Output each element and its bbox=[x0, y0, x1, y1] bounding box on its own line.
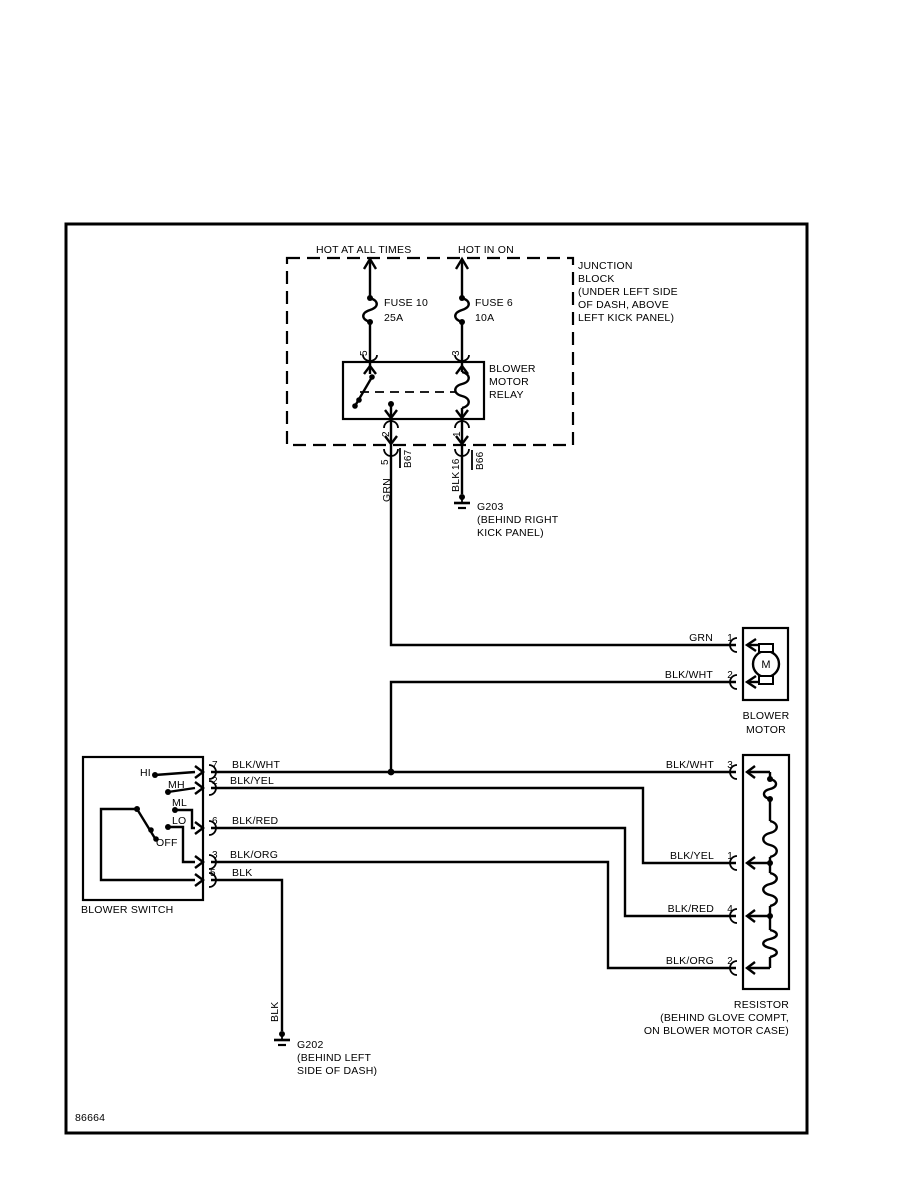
b67-pin: 5 bbox=[380, 459, 391, 465]
blower-switch-label: BLOWER SWITCH bbox=[81, 904, 173, 916]
junction-block-label: JUNCTION bbox=[578, 260, 633, 272]
b66-pin: 16 bbox=[451, 458, 462, 470]
ground-g203: G203 (BEHIND RIGHT KICK PANEL) bbox=[454, 494, 559, 539]
resistor-pin: 4 bbox=[727, 904, 733, 915]
resistor-wire-label: BLK/WHT bbox=[666, 759, 714, 771]
position-hi: HI bbox=[140, 767, 151, 779]
wire-blkred-row bbox=[211, 828, 736, 916]
resistor-block: BLK/WHT 3 BLK/YEL 1 BLK/RED 4 BLK/ORG 2 … bbox=[644, 755, 789, 1037]
position-lo: LO bbox=[172, 815, 186, 827]
junction-block-label: LEFT KICK PANEL) bbox=[578, 312, 674, 324]
resistor-coil-symbol bbox=[763, 930, 777, 957]
resistor-node-dot bbox=[767, 913, 773, 919]
g202-location: SIDE OF DASH) bbox=[297, 1065, 377, 1077]
switch-internal-wire bbox=[155, 772, 195, 775]
g202-location: (BEHIND LEFT bbox=[297, 1052, 372, 1064]
relay-label: RELAY bbox=[489, 389, 524, 401]
switch-pin: 6 bbox=[212, 816, 218, 827]
g203-location: KICK PANEL) bbox=[477, 527, 544, 539]
motor-label: BLOWER bbox=[743, 710, 790, 722]
motor-label: MOTOR bbox=[746, 724, 786, 736]
g203-name: G203 bbox=[477, 501, 504, 513]
junction-block-label: BLOCK bbox=[578, 273, 615, 285]
motor-wire1-label: GRN bbox=[689, 632, 713, 644]
figure-number: 86664 bbox=[75, 1112, 105, 1124]
fuse10-circuit: FUSE 10 25A 5 bbox=[359, 259, 428, 374]
right-arrow-icon bbox=[195, 856, 203, 868]
resistor-node-dot bbox=[767, 860, 773, 866]
resistor-coil-symbol bbox=[763, 873, 777, 906]
switch-wire-label: BLK/WHT bbox=[232, 759, 280, 771]
relay-label: BLOWER bbox=[489, 363, 536, 375]
switch-wire-label: BLK/ORG bbox=[230, 849, 278, 861]
relay-arm-dot bbox=[356, 397, 362, 403]
relay-arm-dot bbox=[352, 403, 358, 409]
resistor-wire-label: BLK/YEL bbox=[670, 850, 714, 862]
switch-pin: 3 bbox=[212, 850, 218, 861]
wire-blk-vertical-label: BLK bbox=[269, 1002, 281, 1022]
switch-pin: 5 bbox=[210, 868, 216, 879]
switch-wire-label: BLK/RED bbox=[232, 815, 279, 827]
resistor-label: (BEHIND GLOVE COMPT, bbox=[660, 1012, 789, 1024]
b66-name: B66 bbox=[475, 451, 486, 470]
resistor-wire-label: BLK/ORG bbox=[666, 955, 714, 967]
motor-symbol: M bbox=[761, 659, 770, 671]
resistor-label: RESISTOR bbox=[734, 999, 789, 1011]
switch-pin: 2 bbox=[212, 776, 218, 787]
switch-pin: 7 bbox=[212, 760, 218, 771]
right-arrow-icon bbox=[195, 782, 203, 794]
resistor-pin: 2 bbox=[727, 956, 733, 967]
motor-wire2-label: BLK/WHT bbox=[665, 669, 713, 681]
motor-pin2: 2 bbox=[727, 670, 733, 681]
fuse6-name: FUSE 6 bbox=[475, 297, 513, 309]
fuse10-rating: 25A bbox=[384, 312, 403, 324]
connector-b66: 16 B66 bbox=[451, 449, 486, 470]
fuse-symbol bbox=[363, 298, 377, 322]
motor-pin1: 1 bbox=[727, 633, 733, 644]
b67-name: B67 bbox=[403, 449, 414, 468]
resistor-pin: 1 bbox=[727, 851, 733, 862]
fuse-symbol bbox=[455, 298, 469, 322]
relay-pin-top-left: 5 bbox=[359, 350, 370, 356]
relay-pin-top-right: 3 bbox=[451, 350, 462, 356]
wire-blkyel-row bbox=[211, 788, 736, 863]
blower-switch: BLOWER SWITCH HI MH ML LO OFF 7 BLK/WHT … bbox=[81, 757, 280, 916]
resistor-coil-symbol bbox=[763, 821, 777, 857]
fuse6-rating: 10A bbox=[475, 312, 494, 324]
hot-at-all-times-label: HOT AT ALL TIMES bbox=[316, 244, 411, 256]
wire-grn bbox=[391, 404, 736, 645]
wiring-diagram-page: 86664 JUNCTION BLOCK (UNDER LEFT SIDE OF… bbox=[0, 0, 918, 1188]
junction-block: JUNCTION BLOCK (UNDER LEFT SIDE OF DASH,… bbox=[287, 258, 678, 445]
resistor-wire-label: BLK/RED bbox=[668, 903, 715, 915]
motor-brush-icon bbox=[759, 644, 773, 652]
motor-brush-icon bbox=[759, 676, 773, 684]
switch-wire-label: BLK bbox=[232, 867, 252, 879]
g203-location: (BEHIND RIGHT bbox=[477, 514, 559, 526]
blower-motor-relay: BLOWER MOTOR RELAY 2 1 bbox=[343, 362, 536, 444]
switch-wire-label: BLK/YEL bbox=[230, 775, 274, 787]
relay-coil-symbol bbox=[455, 372, 469, 408]
wiring-diagram-svg: 86664 JUNCTION BLOCK (UNDER LEFT SIDE OF… bbox=[0, 0, 918, 1188]
right-arrow-icon bbox=[195, 822, 203, 834]
wire-grn-vertical-label: GRN bbox=[381, 478, 393, 502]
resistor-label: ON BLOWER MOTOR CASE) bbox=[644, 1025, 789, 1037]
switch-arm bbox=[137, 809, 156, 840]
fuse10-name: FUSE 10 bbox=[384, 297, 428, 309]
resistor-pin: 3 bbox=[727, 760, 733, 771]
junction-block-label: (UNDER LEFT SIDE bbox=[578, 286, 678, 298]
junction-block-label: OF DASH, ABOVE bbox=[578, 299, 669, 311]
fuse6-circuit: FUSE 6 10A 3 bbox=[451, 259, 513, 372]
right-arrow-icon bbox=[195, 766, 203, 778]
g202-name: G202 bbox=[297, 1039, 324, 1051]
junction-block-outline bbox=[287, 258, 573, 445]
ground-g202: BLK G202 (BEHIND LEFT SIDE OF DASH) bbox=[269, 1002, 377, 1077]
hot-in-on-label: HOT IN ON bbox=[458, 244, 514, 256]
right-arrow-icon bbox=[195, 874, 203, 886]
relay-label: MOTOR bbox=[489, 376, 529, 388]
position-off: OFF bbox=[156, 837, 178, 849]
wire-blk-vertical-label: BLK bbox=[450, 472, 462, 492]
connector-b67: 5 B67 bbox=[380, 448, 414, 468]
